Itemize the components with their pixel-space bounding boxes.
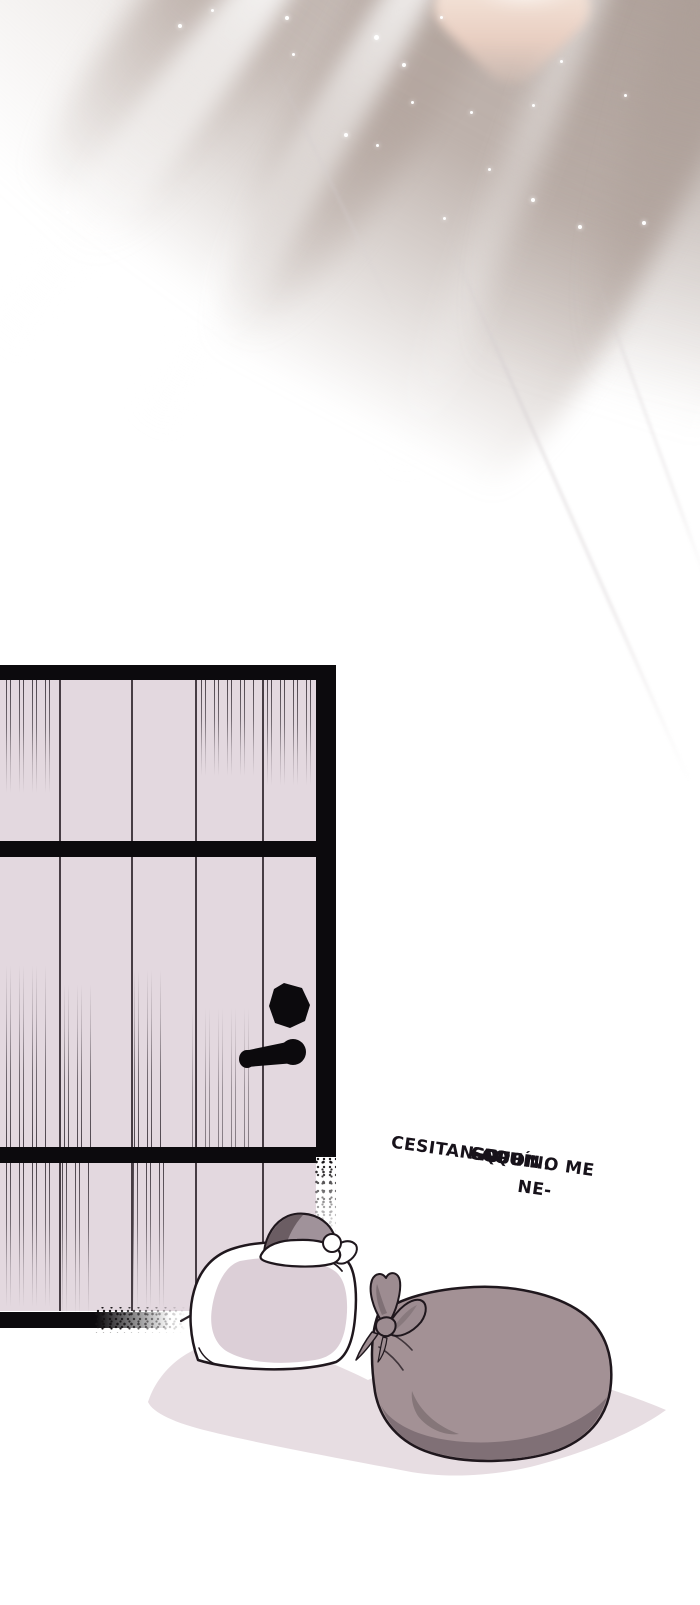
sparkle-dot [66, 211, 69, 214]
dialogue-text: SUPONGO QUE NO ME NE- CESITAN AQUÍ... [334, 1122, 607, 1186]
sparkle-dot [624, 94, 627, 97]
sparkle-dot [531, 198, 535, 202]
door-handle [239, 1050, 255, 1068]
door-handle [280, 1039, 306, 1065]
sacks-illustration [0, 1180, 700, 1605]
wood-grain-scratches [130, 962, 162, 1147]
sparkle-dot [411, 101, 414, 104]
sparkle-dot [532, 104, 535, 107]
sparkle-dot [440, 16, 443, 19]
santa-hat-pompom [323, 1234, 341, 1252]
bow-knot [376, 1317, 396, 1336]
sparkle-dot [285, 16, 289, 20]
door-frame-right-beam [316, 665, 336, 1157]
sparkle-dot [402, 63, 406, 67]
sparkle-dot [344, 133, 348, 137]
sparkle-dot [376, 144, 379, 147]
sparkle-dot [578, 225, 582, 229]
wood-grain-scratches [197, 680, 257, 780]
sparkle-dot [178, 24, 182, 28]
wood-grain-scratches [2, 680, 54, 798]
door-hardware [230, 975, 320, 1080]
wood-grain-scratches [2, 957, 48, 1147]
sparkle-dot [292, 53, 295, 56]
door-crossbeam-lower [0, 1147, 316, 1163]
door-knob [269, 983, 310, 1028]
sparkle-dot [374, 35, 379, 40]
wood-grain-scratches [60, 977, 91, 1147]
sparkle-dot [443, 217, 446, 220]
door-crossbeam-upper [0, 841, 316, 857]
sparkle-dot [470, 111, 473, 114]
sparkle-dot [211, 9, 214, 12]
sparkle-dot [560, 60, 563, 63]
door-frame-top-beam [0, 665, 336, 680]
wood-grain-scratches [263, 680, 313, 790]
white-sack-shading [211, 1258, 347, 1363]
sparkle-dot [488, 168, 491, 171]
comic-page: SUPONGO QUE NO ME NE- CESITAN AQUÍ... [0, 0, 700, 1605]
sparkle-dot [642, 221, 646, 225]
